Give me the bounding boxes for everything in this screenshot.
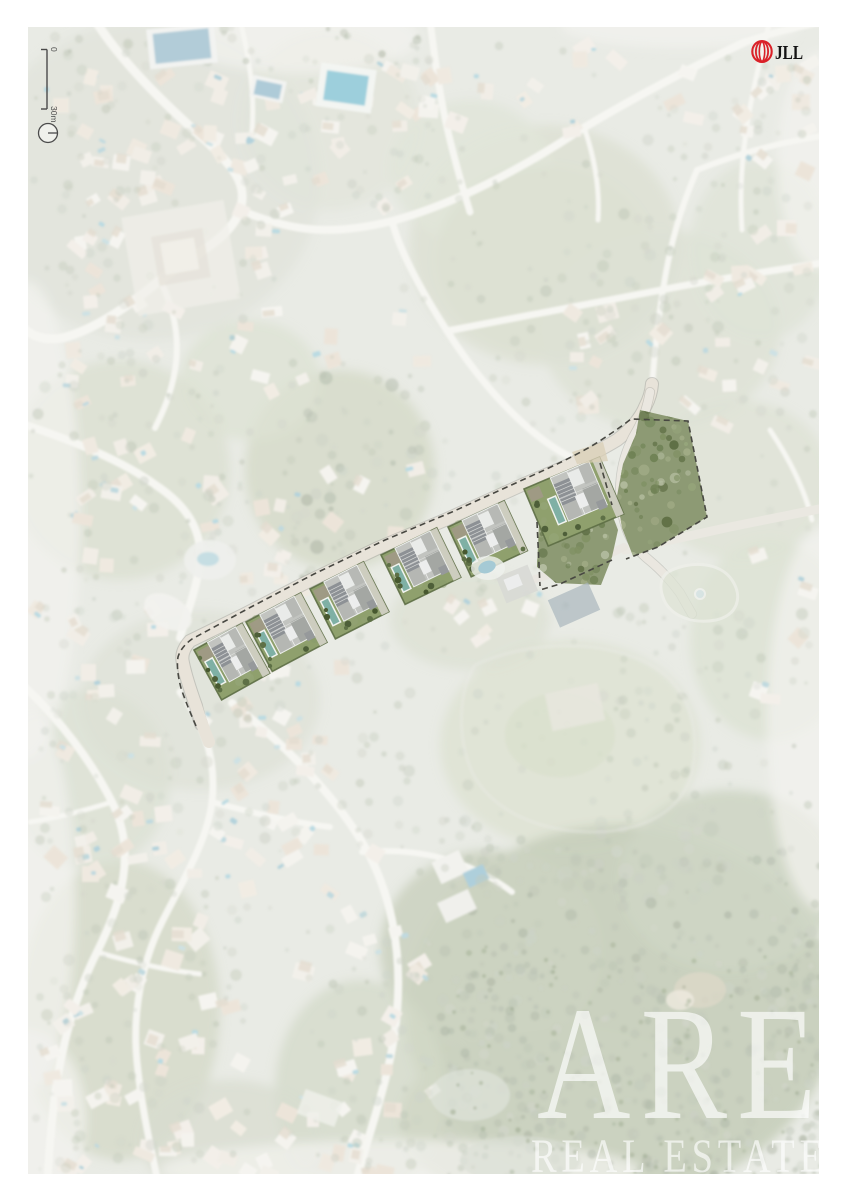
svg-text:ARE: ARE xyxy=(537,973,826,1153)
svg-text:0: 0 xyxy=(49,47,59,52)
svg-text:30m: 30m xyxy=(49,106,59,123)
svg-text:JLL: JLL xyxy=(775,42,803,64)
